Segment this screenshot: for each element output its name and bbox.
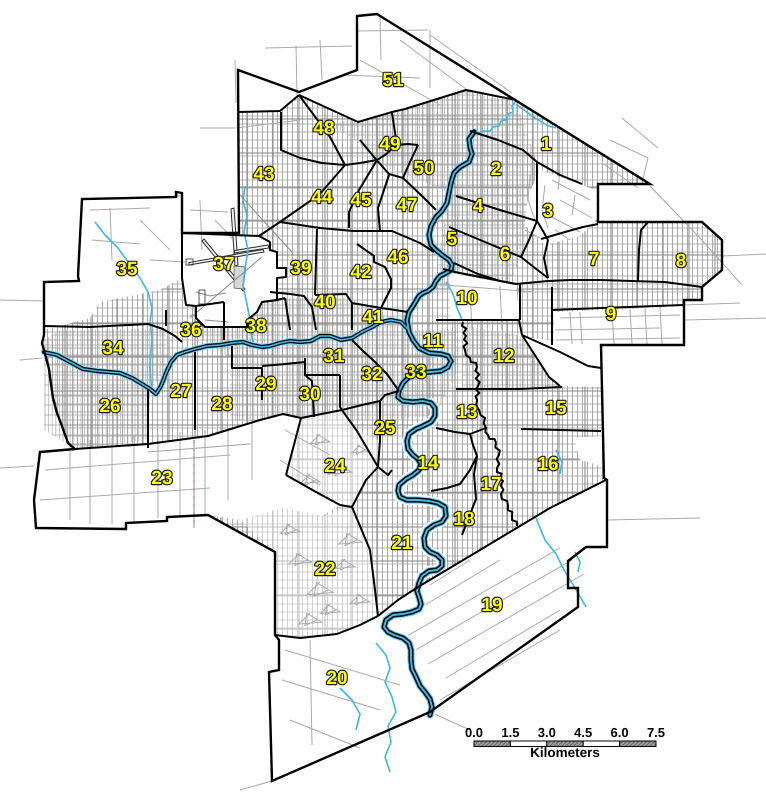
svg-text:7: 7 — [589, 249, 600, 270]
svg-text:51: 51 — [382, 70, 404, 91]
svg-text:3: 3 — [543, 201, 554, 222]
svg-text:33: 33 — [405, 362, 426, 383]
svg-text:4.5: 4.5 — [574, 725, 592, 740]
svg-text:20: 20 — [326, 668, 347, 689]
svg-text:41: 41 — [362, 307, 384, 328]
svg-text:46: 46 — [387, 247, 408, 268]
svg-text:47: 47 — [396, 195, 417, 216]
svg-text:28: 28 — [211, 394, 232, 415]
svg-text:43: 43 — [253, 164, 274, 185]
svg-text:26: 26 — [99, 396, 120, 417]
svg-text:36: 36 — [180, 320, 201, 341]
svg-text:6.0: 6.0 — [611, 725, 629, 740]
svg-text:40: 40 — [314, 292, 335, 313]
svg-text:29: 29 — [255, 374, 276, 395]
svg-text:12: 12 — [493, 346, 514, 367]
svg-text:44: 44 — [311, 187, 333, 208]
svg-text:3.0: 3.0 — [538, 725, 556, 740]
svg-text:2: 2 — [491, 159, 502, 180]
svg-text:15: 15 — [545, 398, 567, 419]
svg-text:5: 5 — [447, 229, 458, 250]
svg-text:50: 50 — [413, 158, 434, 179]
svg-text:10: 10 — [456, 288, 477, 309]
svg-text:31: 31 — [323, 346, 345, 367]
svg-text:17: 17 — [480, 474, 501, 495]
svg-text:14: 14 — [417, 453, 439, 474]
svg-text:19: 19 — [481, 595, 502, 616]
svg-text:21: 21 — [391, 533, 413, 554]
svg-text:35: 35 — [116, 259, 138, 280]
svg-text:22: 22 — [314, 559, 335, 580]
svg-text:6: 6 — [500, 244, 511, 265]
svg-text:4: 4 — [473, 196, 484, 217]
svg-text:48: 48 — [313, 118, 334, 139]
svg-text:30: 30 — [299, 384, 320, 405]
svg-text:0.0: 0.0 — [465, 725, 483, 740]
svg-text:18: 18 — [453, 509, 474, 530]
svg-text:13: 13 — [456, 402, 477, 423]
svg-text:9: 9 — [606, 304, 617, 325]
svg-text:16: 16 — [537, 454, 558, 475]
svg-text:38: 38 — [245, 316, 266, 337]
svg-text:49: 49 — [379, 134, 400, 155]
svg-text:23: 23 — [151, 468, 172, 489]
svg-text:8: 8 — [676, 251, 687, 272]
svg-text:27: 27 — [170, 381, 191, 402]
svg-text:Kilometers: Kilometers — [530, 745, 600, 760]
svg-text:32: 32 — [361, 364, 382, 385]
svg-text:42: 42 — [350, 262, 371, 283]
svg-text:39: 39 — [290, 258, 311, 279]
svg-text:7.5: 7.5 — [647, 725, 665, 740]
svg-text:11: 11 — [423, 331, 444, 352]
svg-text:1: 1 — [541, 134, 552, 155]
svg-text:24: 24 — [324, 456, 346, 477]
svg-text:37: 37 — [213, 254, 234, 275]
svg-text:25: 25 — [374, 418, 396, 439]
svg-text:1.5: 1.5 — [501, 725, 519, 740]
svg-text:45: 45 — [350, 190, 372, 211]
svg-text:34: 34 — [102, 338, 124, 359]
